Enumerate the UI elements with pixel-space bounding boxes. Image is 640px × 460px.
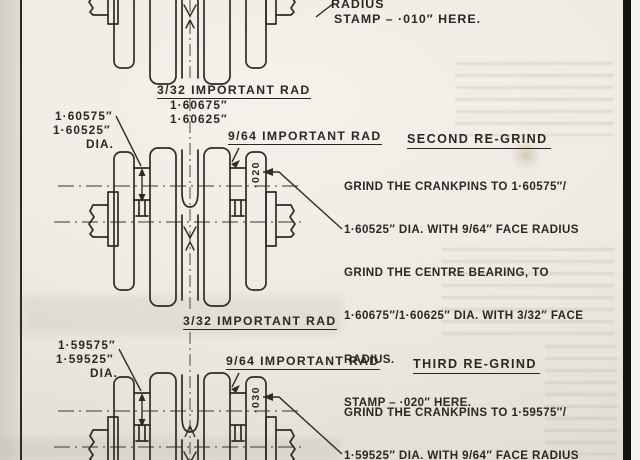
pin-rad-label-mid: 9/64 IMPORTANT RAD [228, 129, 382, 145]
pin-dia-upper-bottom: 1·59575″ [58, 338, 116, 352]
dia-leader-line [119, 349, 141, 391]
first-regrind-radius-line: RADIUS [331, 0, 385, 11]
page-right-margin [631, 0, 640, 460]
pin-dia-lower-bottom: 1·59525″ [56, 352, 114, 366]
paragraph-line: 1·60525″ DIA. WITH 9/64″ FACE RADIUS [344, 223, 583, 237]
paragraph-line: GRIND THE CRANKPINS TO 1·59575″/ [344, 406, 587, 420]
centerlines-mid [54, 186, 302, 222]
centre-rad-label-mid: 3/32 IMPORTANT RAD [157, 83, 311, 99]
dia-leader-line [116, 116, 141, 166]
first-regrind-stamp-line: STAMP – ·010″ HERE. [334, 12, 481, 26]
page-border-left [20, 0, 22, 460]
fillet-leader-line [232, 148, 239, 162]
dia-suffix-bottom: DIA. [90, 366, 118, 380]
scanned-manual-page: ·020 ·030 RADIUS STAMP – ·010″ HERE. 3/3… [0, 0, 640, 460]
third-regrind-paragraph: GRIND THE CRANKPINS TO 1·59575″/ 1·59525… [344, 377, 587, 460]
stamp-leader-line [263, 397, 342, 454]
centre-rad-label-bottom: 3/32 IMPORTANT RAD [183, 314, 337, 330]
second-regrind-title: SECOND RE-GRIND [407, 132, 551, 149]
centre-dia-lower-mid: 1·60625″ [170, 112, 228, 126]
stamp-mark-020: ·020 [250, 161, 262, 188]
centerlines-bottom [54, 411, 302, 447]
stamp-mark-030: ·030 [250, 386, 262, 413]
pin-dia-lower-mid: 1·60525″ [53, 123, 111, 137]
pin-dia-upper-mid: 1·60575″ [55, 109, 113, 123]
pin-rad-label-bottom: 9/64 IMPORTANT RAD [226, 354, 380, 370]
paragraph-line: GRIND THE CRANKPINS TO 1·60575″/ [344, 180, 583, 194]
stamp-leader-line [263, 172, 342, 229]
page-border-right [623, 0, 631, 460]
dia-suffix-mid: DIA. [86, 137, 114, 151]
paragraph-line: 1·60675″/1·60625″ DIA. WITH 3/32″ FACE [344, 309, 583, 323]
third-regrind-title: THIRD RE-GRIND [413, 357, 540, 374]
paragraph-line: GRIND THE CENTRE BEARING, TO [344, 266, 583, 280]
crank-drawing-top [89, 0, 295, 84]
centre-dia-upper-mid: 1·60675″ [170, 98, 228, 112]
fillet-leader-line [232, 373, 239, 387]
paragraph-line: 1·59525″ DIA. WITH 9/64″ FACE RADIUS [344, 449, 587, 460]
